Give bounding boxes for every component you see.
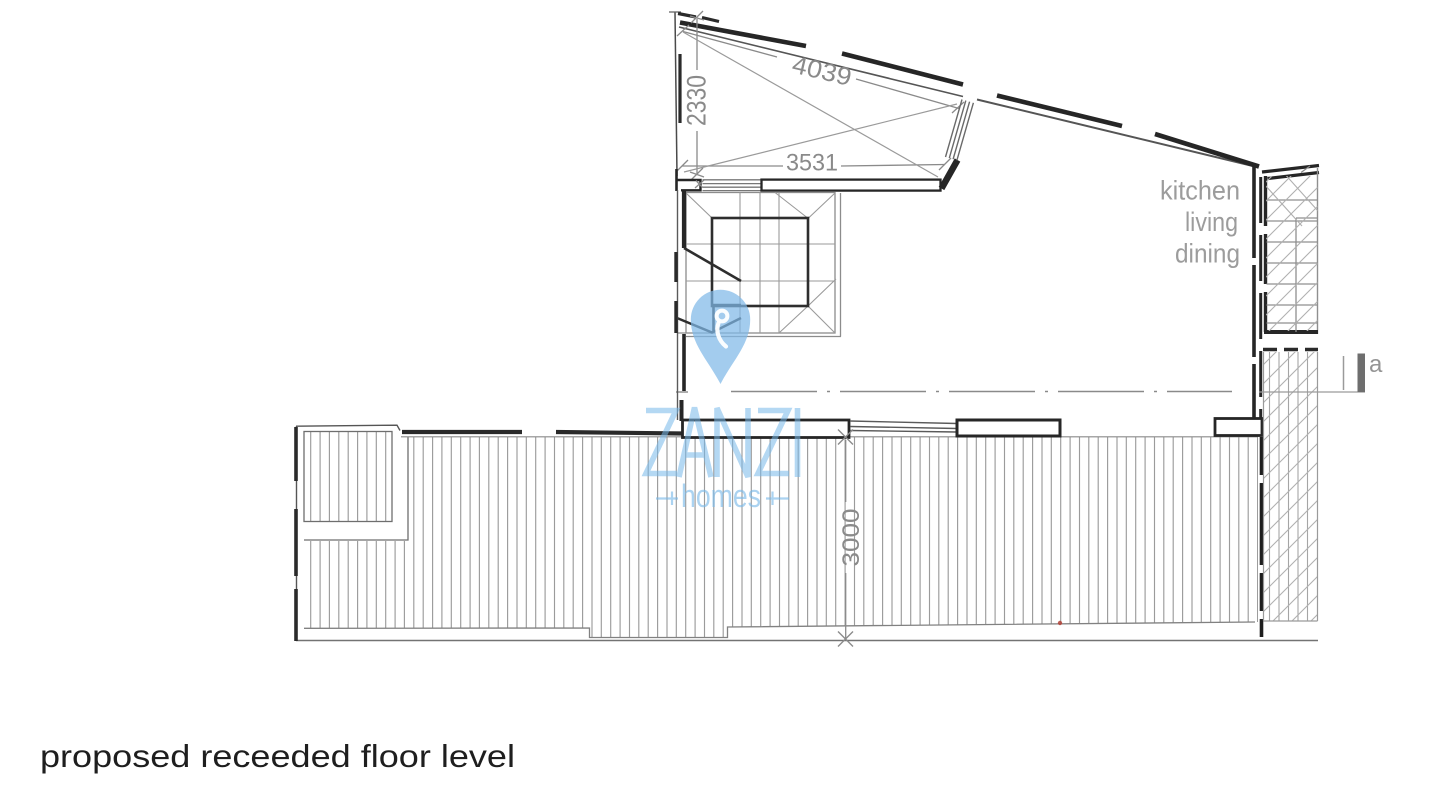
svg-text:3000: 3000 [838,509,865,567]
svg-text:2330: 2330 [682,75,712,126]
svg-text:3531: 3531 [786,150,838,177]
svg-text:a: a [1369,351,1383,378]
svg-text:dining: dining [1175,239,1240,269]
svg-text:living: living [1185,207,1238,237]
svg-text:homes: homes [681,478,761,514]
svg-text:kitchen: kitchen [1160,176,1240,206]
svg-text:proposed receeded floor level: proposed receeded floor level [40,738,515,774]
